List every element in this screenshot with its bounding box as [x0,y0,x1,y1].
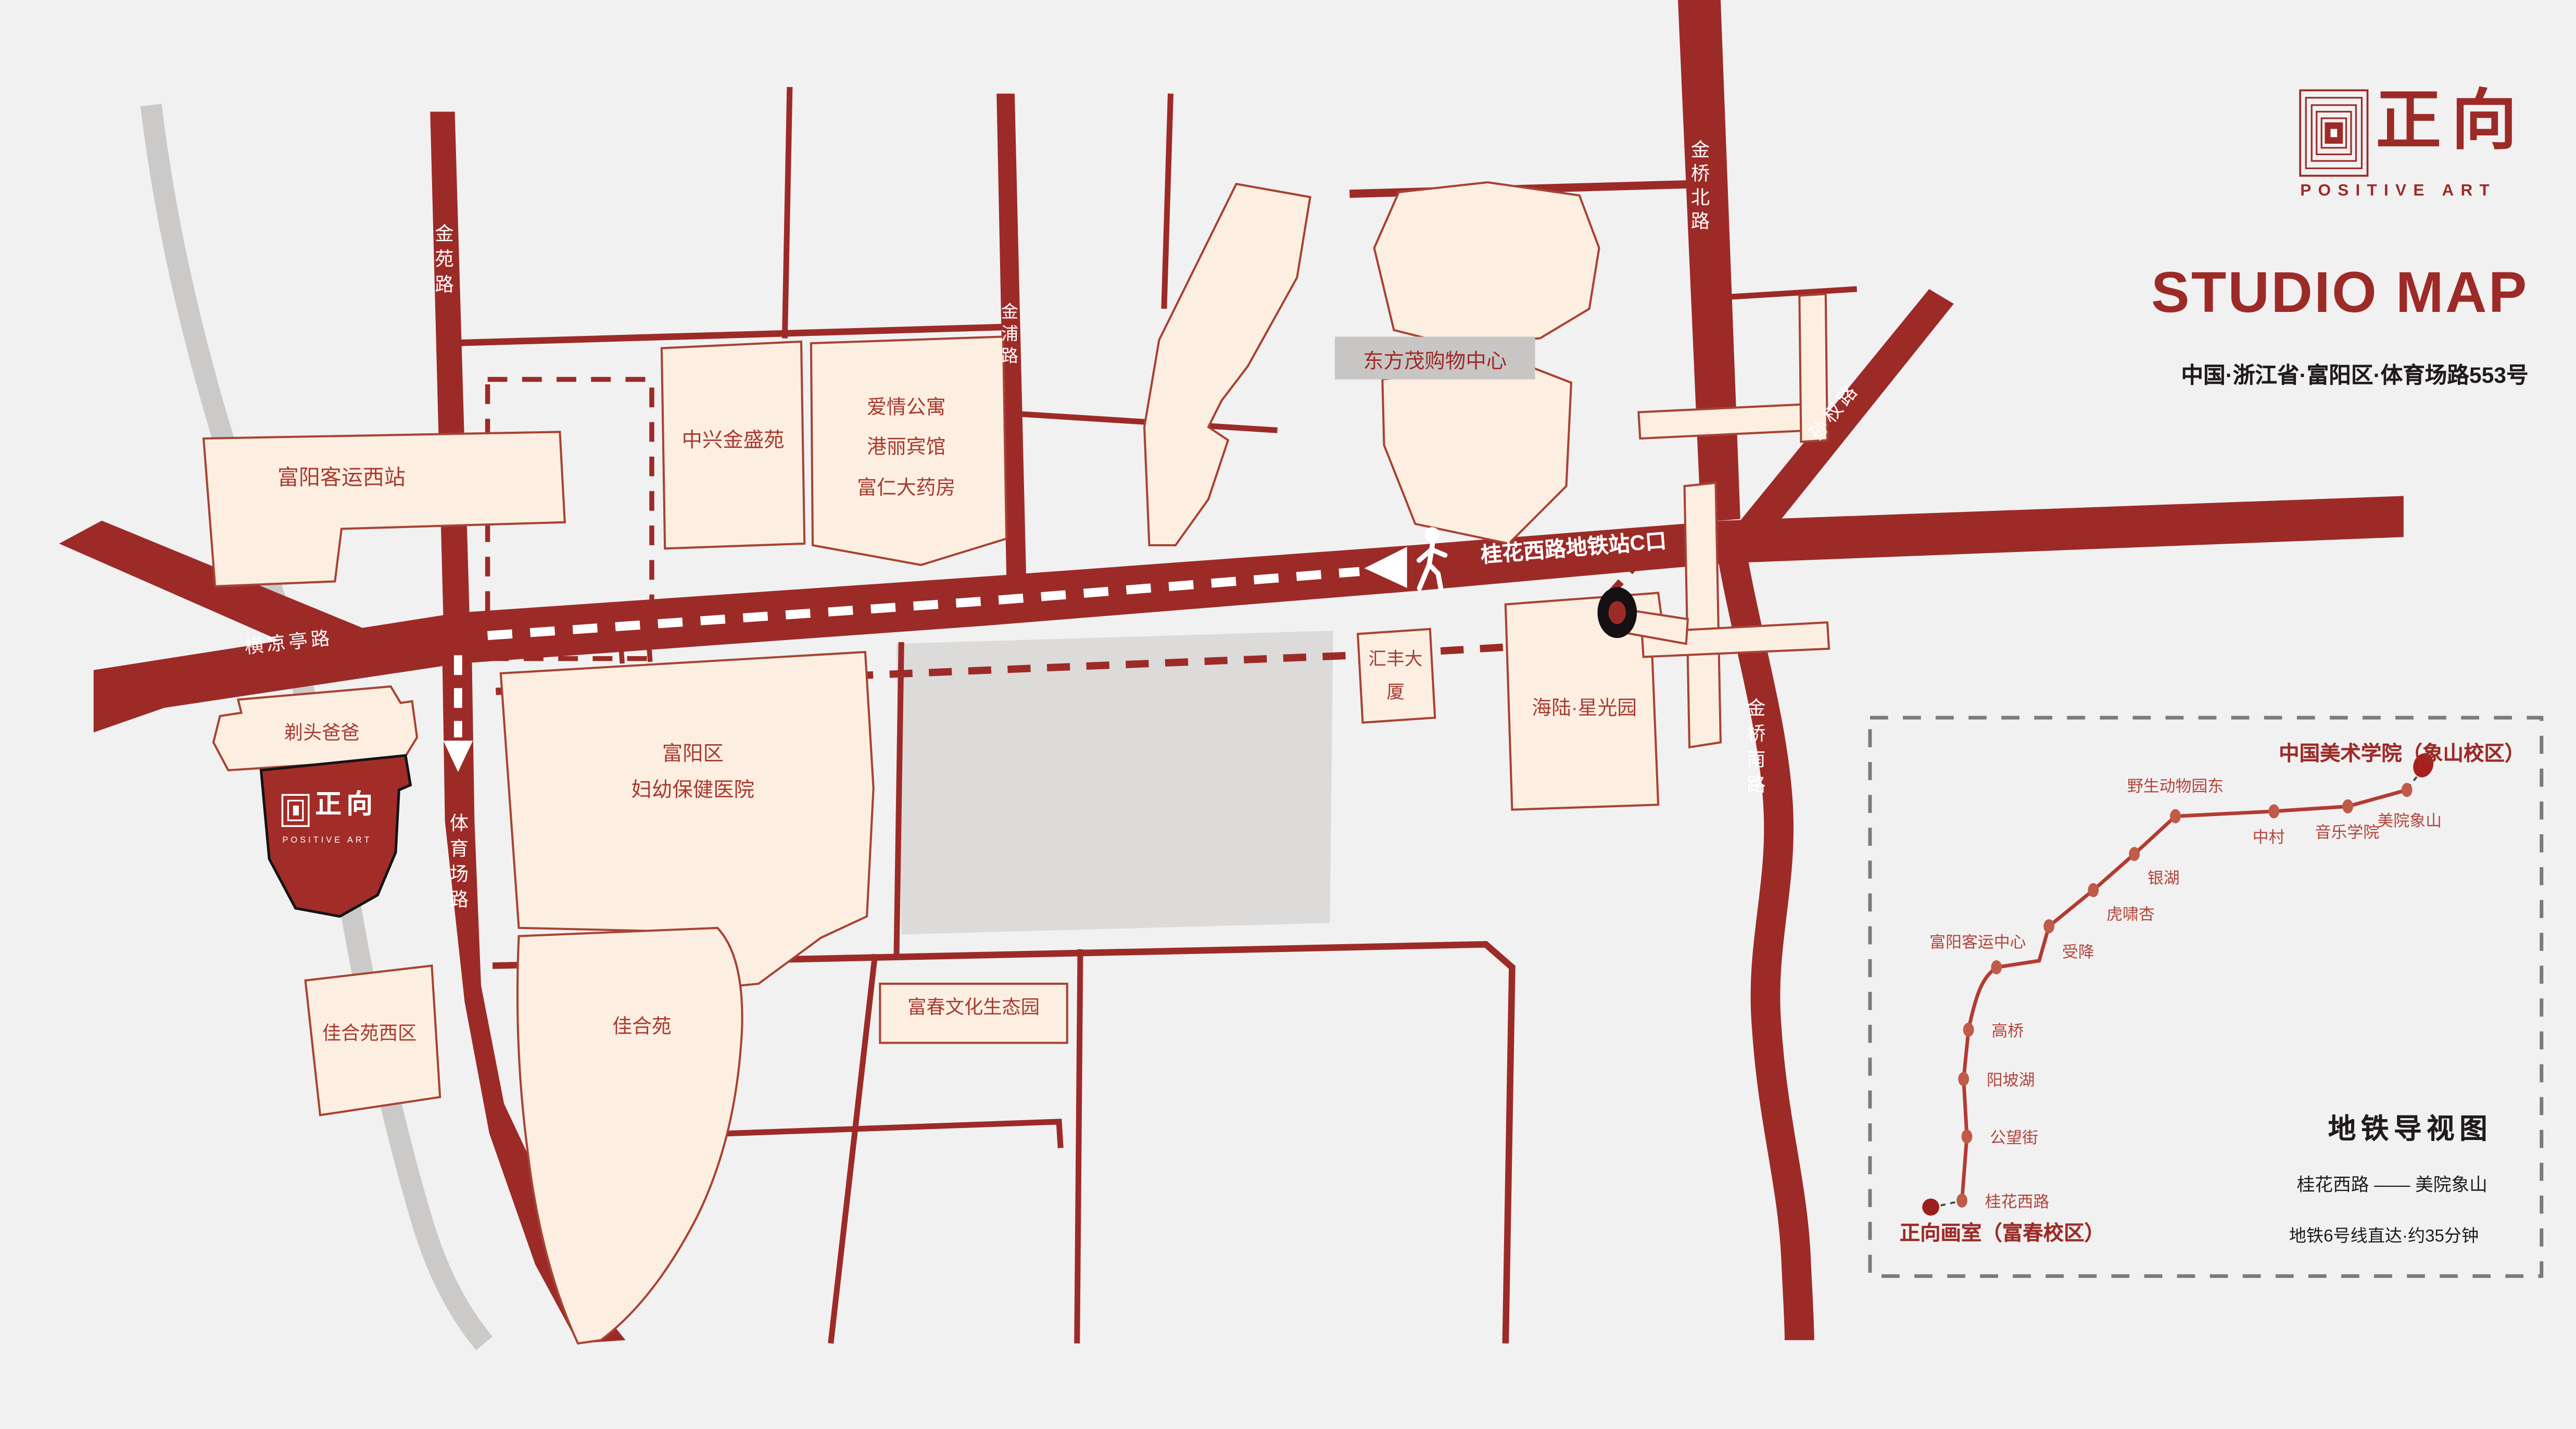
map-canvas [0,0,2576,1429]
station-zhongcun: 中村 [2253,824,2285,847]
gray-block [896,631,1333,934]
station-yinhu: 银湖 [2148,866,2180,888]
label-jiahe: 佳合苑 [598,1015,686,1038]
label-titou: 剃头爸爸 [259,724,384,747]
label-pharmacy: 富仁大药房 [831,477,982,500]
station-yinyuexueyuan: 音乐学院 [2315,820,2380,843]
studio-building-zh: 正向 [315,788,377,820]
inset-studio-label: 正向画室（富春校区） [1900,1222,2105,1246]
poster-title: STUDIO MAP [2036,259,2528,328]
label-apartment: 爱情公寓 [841,396,972,419]
label-west-station: 富阳客运西站 [210,465,473,490]
station-shoujiang: 受降 [2062,939,2094,962]
studio-building-en: POSITIVE ART [282,836,372,846]
label-hospital-line1: 富阳区 [608,742,778,767]
inset-title: 地铁导视图 [2295,1113,2526,1147]
inset-campus-label: 中国美术学院（象山校区） [2200,742,2525,767]
station-dongwuyuandong: 野生动物园东 [2110,773,2241,796]
road-label-jinpu: 金浦路 [998,302,1017,369]
station-keyunzhongxin: 富阳客运中心 [1875,930,2026,952]
label-hailu: 海陆·星光园 [1519,696,1650,720]
road-label-jinqiao-north: 金桥北路 [1688,140,1709,235]
label-jiahe-west: 佳合苑西区 [310,1025,428,1048]
label-huifeng: 汇丰大厦 [1368,645,1423,710]
road-label-jinyuan: 金苑路 [432,223,452,300]
station-yangpohu: 阳坡湖 [1987,1068,2035,1090]
station-guihuaxilu: 桂花西路 [1985,1189,2050,1212]
label-mall: 东方茂购物中心 [1335,336,1535,379]
station-huxiaoxing: 虎啸杏 [2106,901,2155,924]
road-label-jinqiao-south: 金桥南路 [1744,698,1764,800]
studio-address: 中国·浙江省·富阳区·体育场路553号 [2036,363,2528,390]
label-hotel: 港丽宾馆 [841,435,972,459]
brand-logo-zh: 正向 [2376,82,2527,161]
label-zhongxing: 中兴金盛苑 [663,429,803,453]
station-gongwangjie: 公望街 [1990,1125,2038,1148]
inset-studio-dot [1922,1198,1939,1215]
brand-logo-en: POSITIVE ART [2300,182,2496,202]
label-hospital-line2: 妇幼保健医院 [608,779,778,803]
label-eco-park: 富春文化生态园 [883,998,1064,1021]
building-mall-north [1374,182,1599,343]
station-gaoqiao: 高桥 [1991,1018,2024,1041]
inset-route: 桂花西路 —— 美院象山 [2253,1176,2532,1198]
metro-exit-marker-center [1609,601,1626,624]
station-meiyuanxiangshan: 美院象山 [2377,808,2442,831]
road-label-tiyuchang: 体育场路 [447,813,468,915]
plaza-vertical [1685,483,1721,747]
studio-map-poster: 正向 POSITIVE ART STUDIO MAP 中国·浙江省·富阳区·体育… [0,0,2576,1429]
inset-note: 地铁6号线直达·约35分钟 [2236,1227,2532,1248]
